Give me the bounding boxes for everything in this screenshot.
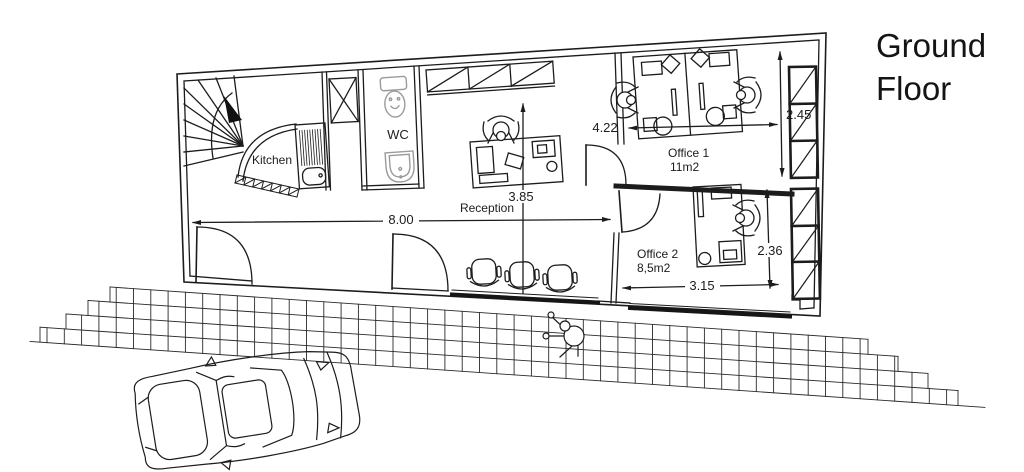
title-line1: Ground <box>876 27 986 64</box>
reception-label: Reception <box>460 201 514 215</box>
office2-label: Office 2 <box>637 247 678 261</box>
office1-label: Office 1 <box>668 146 709 160</box>
dim-label-4-22: 4.22 <box>592 120 617 135</box>
drawing-title: Ground Floor <box>876 27 986 107</box>
dim-label-2-36: 2.36 <box>757 243 782 258</box>
dim-label-2-45: 2.45 <box>786 107 811 122</box>
car-top-view <box>129 335 364 472</box>
dim-label-8-00: 8.00 <box>388 212 413 227</box>
kitchen-label: Kitchen <box>252 153 292 167</box>
wc-label: WC <box>387 127 409 142</box>
title-line2: Floor <box>876 70 951 107</box>
tiled-pavement <box>30 287 985 407</box>
dim-label-3-15: 3.15 <box>689 278 714 293</box>
office2-area-label: 8,5m2 <box>637 261 671 275</box>
office1-area-label: 11m2 <box>670 160 699 174</box>
floor-plan-canvas: 8.00 3.85 Reception 4.22 2.45 2.36 3 <box>0 0 1024 472</box>
